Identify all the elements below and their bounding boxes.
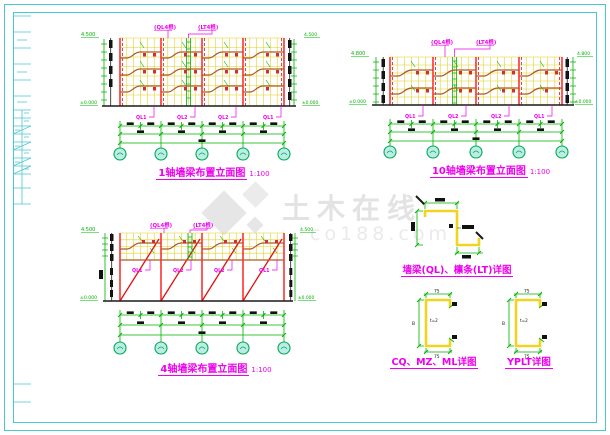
ql-label: QL2 [173,268,183,274]
grid-bubbles [114,338,290,354]
ql-label: QL1 [534,114,544,120]
elevation-label: ±0.000 [302,100,318,106]
callout-label: (LT4根) [476,38,496,46]
drawing3-scale: 1:100 [251,366,271,374]
grid-bubble [196,148,208,160]
grid-bubble [556,146,568,158]
c-detail-1-title: CQ、MZ、ML详图 [390,357,479,369]
elevation-label: ±0.000 [298,295,314,301]
drawing2-scale: 1:100 [530,168,550,176]
callout-label: (LT4根) [193,221,213,229]
ql-labels: QL1 QL2 QL2 QL1 [132,260,277,274]
c-detail-2-caption: YPLT详图 [494,354,564,368]
c-section-detail-2 [498,288,550,360]
grid-bubble [384,146,396,158]
drawing2-caption: 10轴墙梁布置立面图1:100 [410,162,570,177]
dimension-chain [118,121,286,146]
elevation-label: ±0.000 [575,99,591,105]
c-detail-1-caption: CQ、MZ、ML详图 [388,354,480,368]
drawing1-title: 1轴墙梁布置立面图 [156,168,247,180]
callout-label: (QL4根) [150,221,172,229]
grid-bubble [278,342,290,354]
ql-label: QL1 [405,114,415,120]
z-detail-caption: 墙梁(QL)、檩条(LT)详图 [386,262,528,276]
drawing1-caption: 1轴墙梁布置立面图1:100 [143,164,283,179]
grid-bubble [155,342,167,354]
ql-label: QL2 [448,114,458,120]
grid-bubble [513,146,525,158]
ql-labels: QL1 QL2 QL2 QL1 [136,106,281,121]
dimension-chain [388,119,564,144]
drawing3-title: 4轴墙梁布置立面图 [158,364,249,376]
elevation-axis-10: 4.800 ±0.000 4.800 ±0.000 (QL4根) (LT4根) … [345,30,597,165]
dimension-chain [118,310,286,338]
grid-bubble [470,146,482,158]
grid-bubble [155,148,167,160]
ql-label: QL2 [491,114,501,120]
c-section-detail-1: 75 75 B t=2 [408,288,460,360]
grid-bubble [427,146,439,158]
elevation-label: 4.800 [351,51,365,57]
grid-bubble [237,342,249,354]
grid-bubble [114,342,126,354]
ql-label: QL1 [132,268,142,274]
elevation-label: 4.500 [81,227,95,233]
beam-tag-marks [142,240,278,244]
beam-count-callouts: (QL4根) (LT4根) [150,221,213,233]
drawing2-title: 10轴墙梁布置立面图 [430,166,528,178]
z-detail-title: 墙梁(QL)、檩条(LT)详图 [401,265,514,277]
beam-count-callouts: (QL4根) (LT4根) [154,23,218,38]
c-detail-2-title: YPLT详图 [505,357,553,369]
title-block-strip [13,12,31,423]
elevation-label: 4.500 [81,32,95,38]
beam-count-callouts: (QL4根) (LT4根) [431,38,496,57]
elevation-axis-1: 4.500 ±0.000 4.500 ±0.000 (QL4根) (LT4根) … [80,22,325,170]
ql-label: QL1 [259,268,269,274]
ql-label: QL2 [218,115,228,121]
grid-bubbles [114,146,290,160]
grid-bubble [114,148,126,160]
drawing3-caption: 4轴墙梁布置立面图1:100 [140,360,290,375]
ql-label: QL2 [177,115,187,121]
callout-label: (QL4根) [154,23,176,31]
callout-label: (QL4根) [431,38,453,46]
ql-label: QL2 [214,268,224,274]
grid-bubbles [384,144,568,158]
elevation-label: 4.800 [577,51,590,57]
elevation-label: ±0.000 [80,295,97,301]
watermark-diamond-icon [242,181,269,208]
elevation-label: ±0.000 [349,99,366,105]
elevation-label: 4.500 [304,32,317,38]
grid-bubble [237,148,249,160]
wind-braces [120,239,282,301]
drawing1-scale: 1:100 [249,170,269,178]
z-section-detail [405,193,493,261]
detail-dim-values [411,198,474,259]
elevation-marks: 4.500 ±0.000 4.500 ±0.000 [80,227,316,301]
elevation-label: ±0.000 [80,100,97,106]
ql-labels: QL1 QL2 QL2 QL1 [405,105,552,120]
callout-label: (LT4根) [198,23,218,31]
cad-sheet: 土木在线 co188.com 4.500 ±0.000 [0,0,610,435]
ql-label: QL1 [263,115,273,121]
grid-bubble [278,148,290,160]
elevation-label: 4.500 [300,227,313,233]
ql-label: QL1 [136,115,146,121]
grid-bubble [196,342,208,354]
elevation-axis-4: 4.500 ±0.000 4.500 ±0.000 (QL4根) (LT4根) … [80,218,335,360]
